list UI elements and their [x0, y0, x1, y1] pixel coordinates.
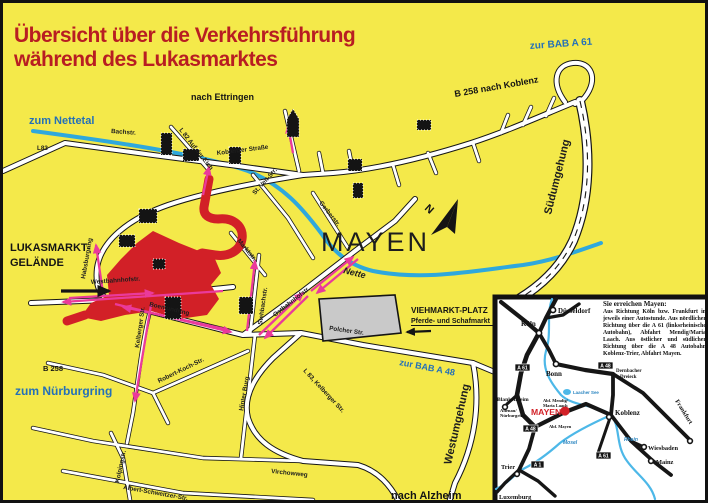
- svg-text:A 61: A 61: [598, 454, 609, 460]
- church-icon: [287, 109, 299, 137]
- viehmarkt-label-subtitle: Pferde- und Schafmarkt: [411, 318, 491, 325]
- svg-text:Mosel: Mosel: [563, 440, 578, 446]
- map-title-line2: während des Lukasmarktes: [13, 48, 277, 71]
- svg-text:Wiesbaden: Wiesbaden: [648, 445, 679, 452]
- lukasmarkt-label-1: LUKASMARKT-: [10, 242, 91, 254]
- svg-text:A 48: A 48: [600, 364, 611, 370]
- bypass-sued-label: Südumgehung: [542, 138, 572, 216]
- svg-text:Abf. Mayen: Abf. Mayen: [549, 424, 572, 429]
- svg-text:A 1: A 1: [534, 463, 542, 469]
- inset-directions-heading: Sie erreichen Mayen:: [603, 300, 706, 308]
- viehmarkt-label-title: VIEHMARKT-PLATZ: [411, 306, 488, 315]
- svg-text:Bonn: Bonn: [546, 370, 562, 378]
- credit-line: © STUDIO RIEGEL • G. SCHUMACHER • MAYEN: [703, 81, 708, 194]
- minor-road: [319, 153, 323, 173]
- road-l83-kelberger: [247, 333, 401, 503]
- lukasmarkt-access-road: [67, 315, 85, 321]
- road-b258-koblenzer-strasse: [303, 102, 575, 175]
- svg-text:A 48: A 48: [525, 427, 536, 433]
- svg-text:A 61: A 61: [517, 366, 528, 372]
- lukasmarkt-label-2: GELÄNDE: [10, 256, 64, 269]
- map-title-line1: Übersicht über die Verkehrsführung: [14, 24, 355, 47]
- svg-text:Nürburgring: Nürburgring: [500, 413, 526, 418]
- dest-b258: B 258: [43, 364, 63, 373]
- road-robert-koch: [153, 393, 168, 423]
- compass-n-label: N: [422, 202, 436, 216]
- dest-ettringen: nach Ettringen: [191, 92, 254, 102]
- svg-text:Dernbacher: Dernbacher: [616, 369, 642, 374]
- svg-text:Virchowweg: Virchowweg: [271, 468, 308, 479]
- dest-alzheim: nach Alzheim: [391, 490, 462, 502]
- inset-mayen-label: MAYEN: [531, 407, 561, 417]
- inset-laacher-see: [563, 389, 571, 395]
- traffic-map: N Übersicht über die Verkehrsführung wäh…: [0, 0, 708, 503]
- svg-text:Laacher See: Laacher See: [573, 390, 599, 395]
- dest-bab-a61: zur BAB A 61: [529, 37, 593, 52]
- inset-directions: Sie erreichen Mayen: Aus Richtung Köln b…: [603, 300, 706, 358]
- inset-dot-mainz: [649, 459, 654, 464]
- viehmarkt-arrow: [407, 331, 431, 332]
- dest-nuerburgring: zum Nürburgring: [15, 384, 112, 398]
- svg-text:L 83, Kelberger Str.: L 83, Kelberger Str.: [302, 368, 346, 415]
- inset-dot-duesseldorf: [550, 307, 555, 312]
- inset-dot-koeln: [536, 330, 541, 335]
- svg-text:Mainz: Mainz: [656, 459, 674, 466]
- svg-text:Düsseldorf: Düsseldorf: [558, 307, 591, 315]
- road-a61-ramp-loop: [557, 63, 593, 104]
- inset-dot-frankfurt: [688, 439, 693, 444]
- svg-text:Luxemburg: Luxemburg: [499, 494, 532, 501]
- inset-directions-body: Aus Richtung Köln bzw. Frankfurt in jewe…: [603, 309, 706, 358]
- svg-text:Ostbahnhofstr.: Ostbahnhofstr.: [272, 285, 312, 318]
- svg-text:Koblenz: Koblenz: [615, 409, 640, 417]
- city-name: MAYEN: [321, 227, 430, 257]
- inset-dot-wiesbaden: [642, 445, 647, 450]
- svg-text:Gerberstr.: Gerberstr.: [317, 200, 341, 228]
- inset-dot-bonn: [553, 361, 558, 366]
- svg-text:Maria Laach: Maria Laach: [543, 403, 568, 408]
- inset-dot-trier: [515, 472, 520, 477]
- svg-text:Bachstr.: Bachstr.: [111, 128, 137, 137]
- svg-text:L 82 Auf der Eich: L 82 Auf der Eich: [177, 127, 214, 172]
- svg-text:Koblenzer Straße: Koblenzer Straße: [216, 144, 269, 157]
- inset-dot-koblenz: [607, 415, 612, 420]
- svg-text:Blankenheim: Blankenheim: [497, 397, 529, 403]
- svg-text:Rhein: Rhein: [624, 437, 638, 443]
- svg-text:Dreieck: Dreieck: [620, 375, 637, 380]
- svg-text:L83: L83: [37, 145, 48, 152]
- svg-text:Trier: Trier: [501, 464, 515, 471]
- dest-b258-koblenz: B 258 nach Koblenz: [454, 74, 540, 99]
- svg-text:Köln: Köln: [521, 320, 536, 328]
- dest-nettetal: zum Nettetal: [29, 115, 94, 127]
- road-b258-koblenzer-strasse: [303, 102, 575, 175]
- map-canvas: N Übersicht über die Verkehrsführung wäh…: [3, 3, 708, 503]
